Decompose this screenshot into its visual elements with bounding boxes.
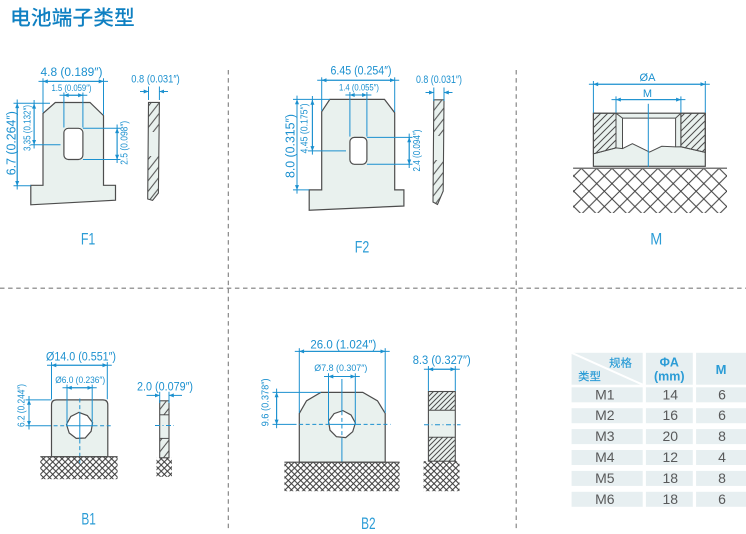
svg-text:ΦA: ΦA [660,356,679,370]
svg-text:9.6 (0.378″): 9.6 (0.378″) [260,378,272,426]
svg-text:18: 18 [663,491,679,507]
svg-text:M: M [650,231,662,249]
svg-text:8: 8 [718,470,726,486]
svg-text:M2: M2 [595,407,615,423]
svg-text:6: 6 [718,386,726,402]
svg-text:8.3 (0.327″): 8.3 (0.327″) [413,355,471,367]
svg-text:4.45 (0.175″): 4.45 (0.175″) [298,104,310,154]
svg-text:12: 12 [663,449,679,465]
svg-text:F2: F2 [355,238,370,256]
svg-text:20: 20 [663,428,679,444]
svg-text:Ø7.8 (0.307″): Ø7.8 (0.307″) [314,363,367,374]
svg-text:4: 4 [718,449,726,465]
svg-text:0.8 (0.031″): 0.8 (0.031″) [131,74,180,86]
svg-text:M6: M6 [595,491,615,507]
svg-text:8.0 (0.315″): 8.0 (0.315″) [282,114,297,178]
svg-text:1.5 (0.059″): 1.5 (0.059″) [52,83,92,94]
svg-text:0.8 (0.031″): 0.8 (0.031″) [416,74,462,86]
svg-text:3.35 (0.132″): 3.35 (0.132″) [21,105,33,151]
svg-text:16: 16 [663,407,679,423]
svg-text:6.7 (0.264″): 6.7 (0.264″) [3,111,18,175]
svg-text:6.45 (0.254″): 6.45 (0.254″) [331,66,392,78]
svg-text:6: 6 [718,407,726,423]
svg-text:4.8 (0.189″): 4.8 (0.189″) [41,67,103,79]
svg-text:14: 14 [663,386,679,402]
svg-text:M4: M4 [595,449,615,465]
svg-text:Ø14.0 (0.551″): Ø14.0 (0.551″) [46,351,116,363]
svg-text:Ø6.0 (0.236″): Ø6.0 (0.236″) [55,375,105,386]
svg-text:1.4 (0.055″): 1.4 (0.055″) [339,83,379,94]
svg-text:6: 6 [718,491,726,507]
svg-text:2.5 (0.098″): 2.5 (0.098″) [119,121,131,165]
svg-text:M1: M1 [595,386,615,402]
svg-text:ØA: ØA [640,72,657,84]
svg-text:M: M [643,88,652,100]
svg-text:F1: F1 [81,231,96,249]
svg-text:M: M [716,362,727,377]
svg-text:M5: M5 [595,470,615,486]
svg-text:2.0 (0.079″): 2.0 (0.079″) [137,382,193,394]
svg-text:18: 18 [663,470,679,486]
svg-text:M3: M3 [595,428,615,444]
svg-text:8: 8 [718,428,726,444]
svg-text:B2: B2 [361,515,376,533]
svg-text:6.2 (0.244″): 6.2 (0.244″) [16,384,28,427]
svg-text:B1: B1 [81,511,96,529]
svg-text:(mm): (mm) [654,370,685,384]
svg-text:2.4 (0.094″): 2.4 (0.094″) [412,130,423,172]
svg-text:26.0 (1.024″): 26.0 (1.024″) [310,339,376,351]
